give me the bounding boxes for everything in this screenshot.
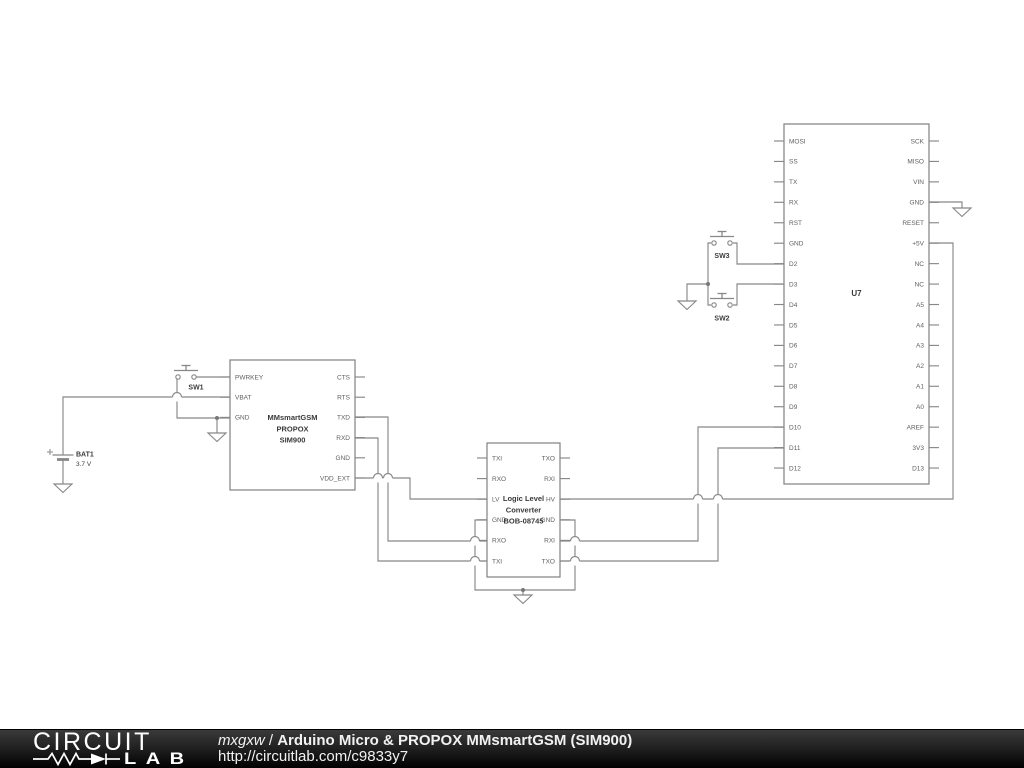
pin-label: TXI (492, 558, 502, 565)
pin-label: VBAT (235, 395, 252, 402)
switch-ref-label: SW2 (714, 316, 729, 323)
pin-label: D5 (789, 322, 798, 329)
junction-dot (706, 282, 710, 286)
pin-label: A3 (916, 343, 924, 350)
logic-level-converter: TXIRXOLVGNDRXOTXITXORXIHVGNDRXITXOLogic … (477, 443, 570, 577)
footer-text: mxgxw / Arduino Micro & PROPOX MMsmartGS… (218, 733, 632, 765)
pin-label: A4 (916, 322, 924, 329)
pin-label: LV (492, 497, 500, 504)
pin-label: A5 (916, 302, 924, 309)
ground-icon (514, 595, 532, 604)
pushbutton-sw3: SW3 (710, 232, 734, 261)
component-title: MMsmartGSM (267, 413, 317, 422)
pin-label: A0 (916, 404, 924, 411)
pin-label: D10 (789, 424, 801, 431)
pin-label: D2 (789, 261, 798, 268)
pin-label: HV (546, 497, 556, 504)
junction-dot (521, 588, 525, 592)
pin-label: TXO (542, 558, 555, 565)
schematic-title: Arduino Micro & PROPOX MMsmartGSM (SIM90… (277, 732, 632, 749)
pin-label: RTS (337, 395, 351, 402)
pin-label: NC (915, 281, 925, 288)
pin-label: RST (789, 220, 802, 227)
pin-label: 3V3 (912, 445, 924, 452)
switch-ref-label: SW3 (714, 253, 729, 260)
pin-label: D11 (789, 445, 801, 452)
wire (560, 448, 784, 561)
ground-icon (953, 208, 971, 217)
pin-label: MISO (907, 159, 924, 166)
pin-label: PWRKEY (235, 374, 264, 381)
pin-label: GND (336, 455, 351, 462)
pin-label: TX (789, 179, 798, 186)
page: MOSISSTXRXRSTGNDD2D3D4D5D6D7D8D9D10D11D1… (0, 0, 1024, 768)
pin-label: VDD_EXT (320, 475, 350, 482)
pin-label: RXI (544, 538, 555, 545)
pin-label: RXI (544, 476, 555, 483)
logo-lab-text: LAB (124, 751, 194, 766)
battery-bat1: BAT13.7 V (47, 449, 94, 468)
pin-label: SS (789, 159, 798, 166)
ground-icon (678, 301, 696, 310)
component-title: BOB-08745 (503, 517, 543, 526)
pin-label: D4 (789, 302, 798, 309)
pin-label: AREF (907, 424, 924, 431)
pin-label: D6 (789, 343, 798, 350)
mmsmartgsm-module: PWRKEYVBATGNDCTSRTSTXDRXDGNDVDD_EXTMMsma… (220, 360, 365, 490)
pin-label: TXO (542, 455, 555, 462)
schematic-url: http://circuitlab.com/c9833y7 (218, 749, 632, 765)
component-title: Logic Level (503, 494, 544, 503)
wire (733, 284, 784, 305)
pin-label: D12 (789, 465, 801, 472)
wire (708, 243, 711, 305)
pin-label: GND (910, 200, 925, 207)
pin-label: GND (789, 241, 804, 248)
pin-label: MOSI (789, 138, 806, 145)
pin-label: RXO (492, 538, 506, 545)
pushbutton-sw2: SW2 (710, 294, 734, 323)
pin-label: NC (915, 261, 925, 268)
pin-label: A2 (916, 363, 924, 370)
footer-bar: CIRCUIT LAB mxgxw / Arduino Micro & PROP… (0, 729, 1024, 768)
schematic-title-line: mxgxw / Arduino Micro & PROPOX MMsmartGS… (218, 733, 632, 749)
pin-label: RXD (336, 435, 350, 442)
wire (929, 202, 962, 208)
pin-label: D13 (912, 465, 924, 472)
pin-label: D9 (789, 404, 798, 411)
component-title: PROPOX (276, 424, 308, 433)
pin-label: D7 (789, 363, 798, 370)
wire (687, 284, 708, 301)
arduino-micro-u7: MOSISSTXRXRSTGNDD2D3D4D5D6D7D8D9D10D11D1… (774, 124, 939, 484)
author-name: mxgxw (218, 732, 265, 749)
wire (733, 243, 784, 264)
wire (63, 397, 230, 455)
pushbutton-sw1: SW1 (174, 366, 204, 392)
switch-ref-label: SW1 (188, 385, 203, 392)
pin-label: A1 (916, 384, 924, 391)
pin-label: TXI (492, 455, 502, 462)
ground-icon (54, 484, 72, 493)
pin-label: GND (235, 415, 250, 422)
schematic-canvas: MOSISSTXRXRSTGNDD2D3D4D5D6D7D8D9D10D11D1… (0, 0, 1024, 729)
pin-label: RX (789, 200, 799, 207)
pin-label: D3 (789, 281, 798, 288)
pin-label: SCK (911, 138, 925, 145)
circuitlab-logo: CIRCUIT LAB (33, 731, 183, 766)
component-title: U7 (851, 289, 862, 298)
component-title: Converter (506, 505, 542, 514)
pin-label: RESET (902, 220, 924, 227)
junction-dot (215, 416, 219, 420)
pin-label: TXD (337, 415, 350, 422)
pin-label: RXO (492, 476, 506, 483)
pin-label: CTS (337, 374, 351, 381)
battery-value-label: 3.7 V (76, 461, 92, 468)
battery-ref-label: BAT1 (76, 452, 94, 459)
wire (560, 427, 784, 541)
title-separator: / (265, 732, 278, 749)
ground-icon (208, 433, 226, 442)
component-title: SIM900 (280, 436, 306, 445)
pin-label: VIN (913, 179, 924, 186)
resistor-diode-icon (33, 751, 121, 767)
pin-label: +5V (912, 241, 924, 248)
pin-label: D8 (789, 384, 798, 391)
